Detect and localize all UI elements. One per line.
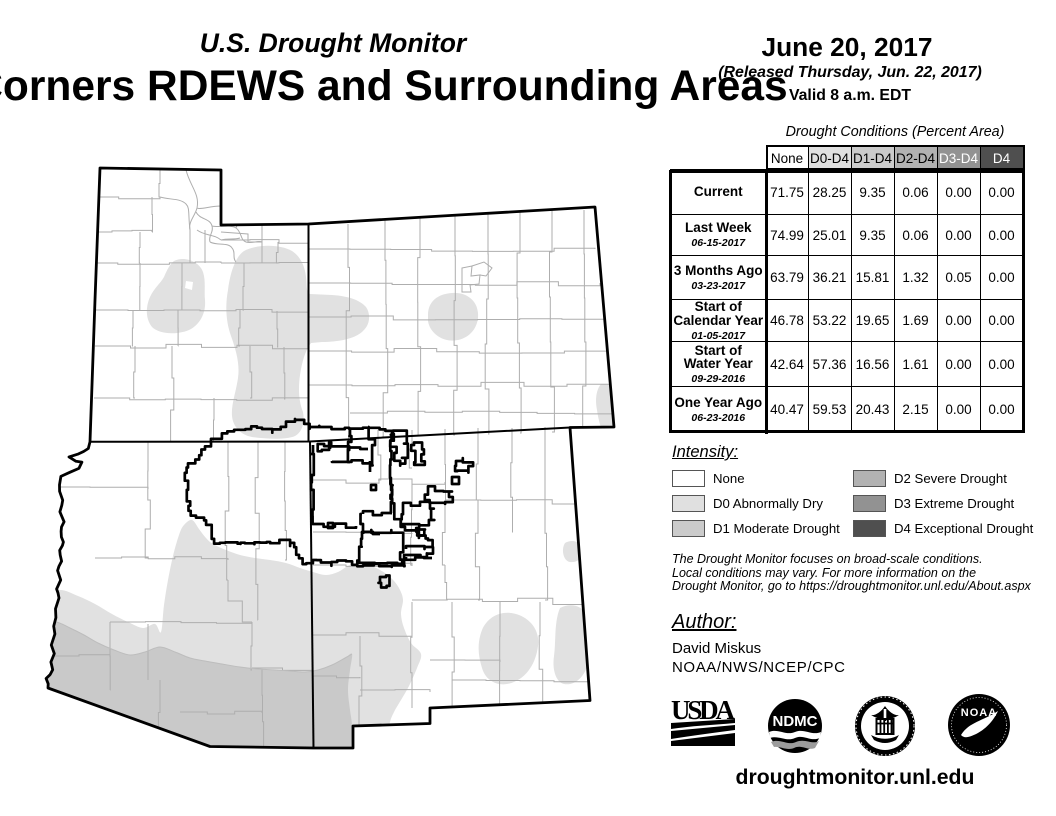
svg-text:NOAA: NOAA [961,707,997,719]
svg-text:NDMC: NDMC [773,713,818,730]
